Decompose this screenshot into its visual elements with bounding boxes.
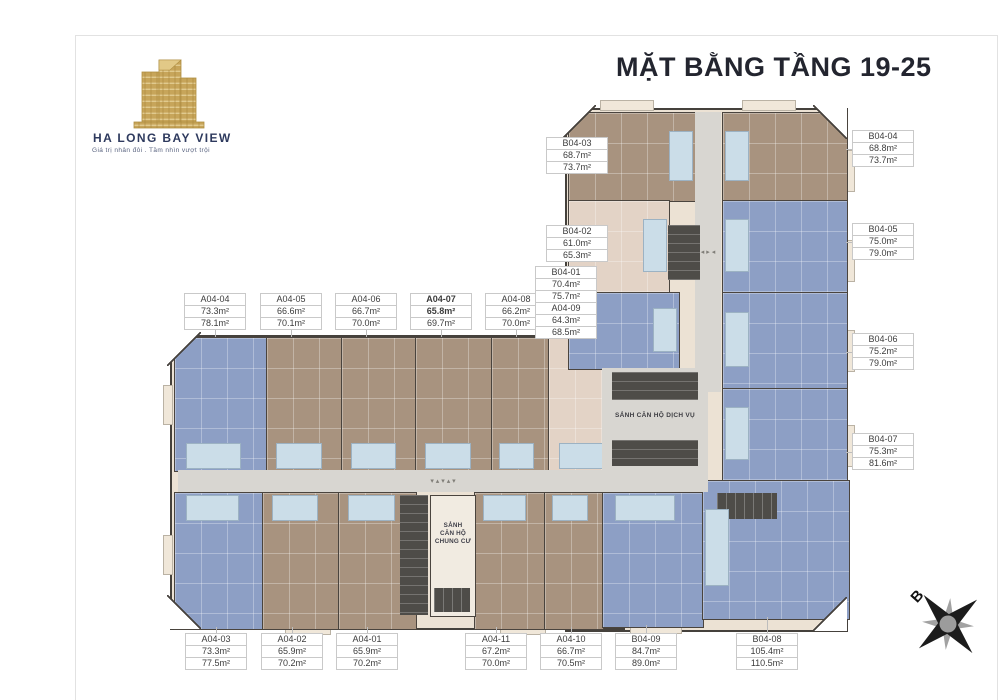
balcony [742, 100, 796, 111]
bathroom-strip [669, 131, 693, 181]
bathroom-strip [272, 495, 318, 521]
bathroom-strip [559, 443, 607, 469]
unit-A04-02-block [262, 492, 340, 630]
unit-label-B04-06: B04-0675.2m²79.0m² [852, 334, 914, 370]
bathroom-strip [725, 131, 749, 181]
unit-A04-10-block [544, 492, 604, 630]
bathroom-strip [483, 495, 526, 521]
leader-line [215, 330, 216, 337]
stairs-core-b [668, 225, 700, 280]
bathroom-strip [425, 443, 471, 469]
bathroom-strip [351, 443, 396, 469]
unit-A04-05-block [266, 337, 343, 472]
lobby-label-line: CHUNG CƯ [435, 538, 471, 545]
unit-label-A04-05: A04-0566.6m²70.1m² [260, 294, 322, 330]
bathroom-strip [653, 308, 677, 352]
roof-chamfer [813, 597, 847, 631]
bathroom-strip [615, 495, 675, 521]
unit-label-B04-05: B04-0575.0m²79.0m² [852, 224, 914, 260]
brand-tagline: Giá trị nhân đôi . Tầm nhìn vượt trội [92, 147, 242, 154]
unit-label-B04-03: B04-0368.7m²73.7m² [546, 138, 608, 174]
unit-label-A04-10: A04-1066.7m²70.5m² [540, 634, 602, 670]
unit-B04-07-block [722, 388, 848, 482]
roof-chamfer [167, 595, 201, 629]
unit-label-A04-04: A04-0473.3m²78.1m² [184, 294, 246, 330]
lobby-label-line: SẢNH [444, 522, 463, 529]
bathroom-strip [186, 443, 241, 469]
balcony [163, 385, 173, 425]
service-lobby: SẢNH CĂN HỘ DỊCH VỤ [602, 368, 708, 470]
roof-chamfer [813, 105, 847, 139]
unit-label-A04-09: A04-0964.3m²68.5m² [535, 303, 597, 339]
roof-chamfer [167, 332, 201, 366]
unit-label-A04-11: A04-1167.2m²70.0m² [465, 634, 527, 670]
unit-label-B04-04: B04-0468.8m²73.7m² [852, 131, 914, 167]
unit-A04-11-block [474, 492, 546, 630]
elevator-core-residential [400, 495, 428, 615]
floor-plan-page: HA LONG BAY VIEW Giá trị nhân đôi . Tầm … [0, 0, 1000, 700]
unit-B04-06-block [722, 292, 848, 390]
roof-chamfer [562, 105, 596, 139]
unit-label-B04-07: B04-0775.3m²81.6m² [852, 434, 914, 470]
balcony [163, 535, 173, 575]
unit-label-A04-01: A04-0165.9m²70.2m² [336, 634, 398, 670]
bathroom-strip [643, 219, 667, 272]
unit-label-A04-03: A04-0373.3m²77.5m² [185, 634, 247, 670]
residential-lobby: SẢNH CĂN HỘ CHUNG CƯ [430, 495, 476, 617]
elevator-bank [612, 372, 698, 400]
unit-label-A04-06: A04-0666.7m²70.0m² [335, 294, 397, 330]
unit-label-B04-02: B04-0261.0m²65.3m² [546, 226, 608, 262]
residential-lobby-label: SẢNH CĂN HỘ CHUNG CƯ [431, 522, 475, 546]
bathroom-strip [276, 443, 322, 469]
bathroom-strip [499, 443, 534, 469]
bathroom-strip [552, 495, 588, 521]
corridor-horizontal: ▾ ▴ ▾ ▴ ▾ [178, 470, 708, 492]
unit-A04-07-block [415, 337, 493, 472]
bathroom-strip [725, 407, 749, 460]
elevator-bank [612, 440, 698, 466]
unit-label-B04-08: B04-08105.4m²110.5m² [736, 634, 798, 670]
service-lobby-label: SẢNH CĂN HỘ DỊCH VỤ [602, 412, 708, 419]
unit-label-B04-01: B04-0170.4m²75.7m² [535, 267, 597, 303]
unit-B04-05-block [722, 200, 848, 294]
leader-line [516, 330, 517, 337]
lobby-label-line: CĂN HỘ [440, 530, 466, 537]
leader-line [366, 330, 367, 337]
brand-name: HA LONG BAY VIEW [93, 131, 213, 145]
bathroom-strip [725, 312, 749, 367]
bathroom-strip [705, 509, 729, 587]
unit-label-A04-02: A04-0265.9m²70.2m² [261, 634, 323, 670]
brand-building-icon [118, 58, 218, 130]
leader-line [291, 330, 292, 337]
leader-line [441, 330, 442, 337]
unit-label-A04-07: A04-0765.8m²69.7m² [410, 294, 472, 330]
balcony [600, 100, 654, 111]
bathroom-strip [186, 495, 239, 521]
unit-label-B04-09: B04-0984.7m²89.0m² [615, 634, 677, 670]
page-title: MẶT BẰNG TẦNG 19-25 [616, 52, 946, 83]
bathroom-strip [348, 495, 395, 521]
unit-B04-09-block [602, 492, 704, 628]
stairs-core [434, 588, 470, 612]
unit-A04-06-block [341, 337, 417, 472]
bathroom-strip [725, 219, 749, 272]
unit-A04-08-block [491, 337, 550, 472]
leader-line [767, 617, 768, 634]
